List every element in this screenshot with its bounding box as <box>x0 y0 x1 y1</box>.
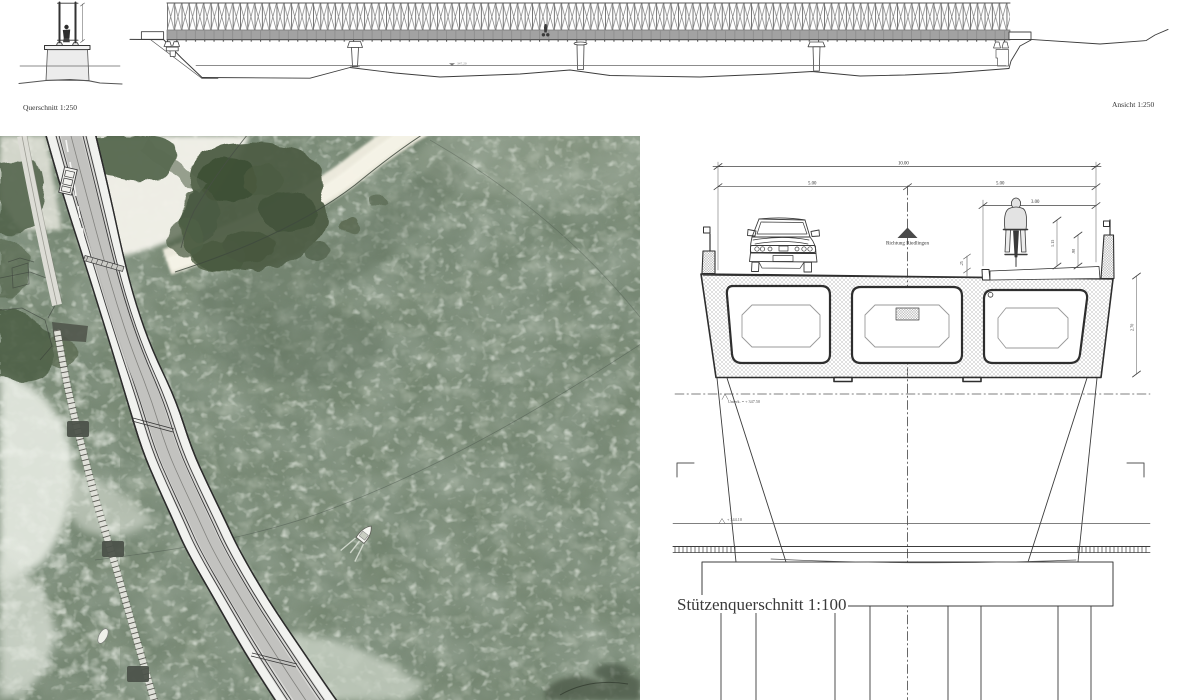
svg-text:1.15: 1.15 <box>1050 240 1055 247</box>
svg-text:3.00: 3.00 <box>1031 200 1040 205</box>
svg-text:Querschnitt 1:250: Querschnitt 1:250 <box>23 103 77 112</box>
svg-text:347.20: 347.20 <box>457 62 467 66</box>
svg-text:Richtung Riedlingen: Richtung Riedlingen <box>886 241 929 247</box>
svg-text:+ 344.10: + 344.10 <box>727 517 742 522</box>
svg-text:.90: .90 <box>1071 249 1076 254</box>
svg-text:5.00: 5.00 <box>808 181 817 186</box>
svg-text:.25: .25 <box>960 261 964 266</box>
svg-text:2.70: 2.70 <box>1130 324 1135 331</box>
svg-text:5.00: 5.00 <box>996 181 1005 186</box>
svg-text:Stützenquerschnitt 1:100: Stützenquerschnitt 1:100 <box>677 595 847 614</box>
svg-text:Ansicht 1:250: Ansicht 1:250 <box>1112 100 1155 109</box>
svg-text:Unterk. = + 347.50: Unterk. = + 347.50 <box>728 399 760 404</box>
svg-text:10.00: 10.00 <box>898 162 909 167</box>
